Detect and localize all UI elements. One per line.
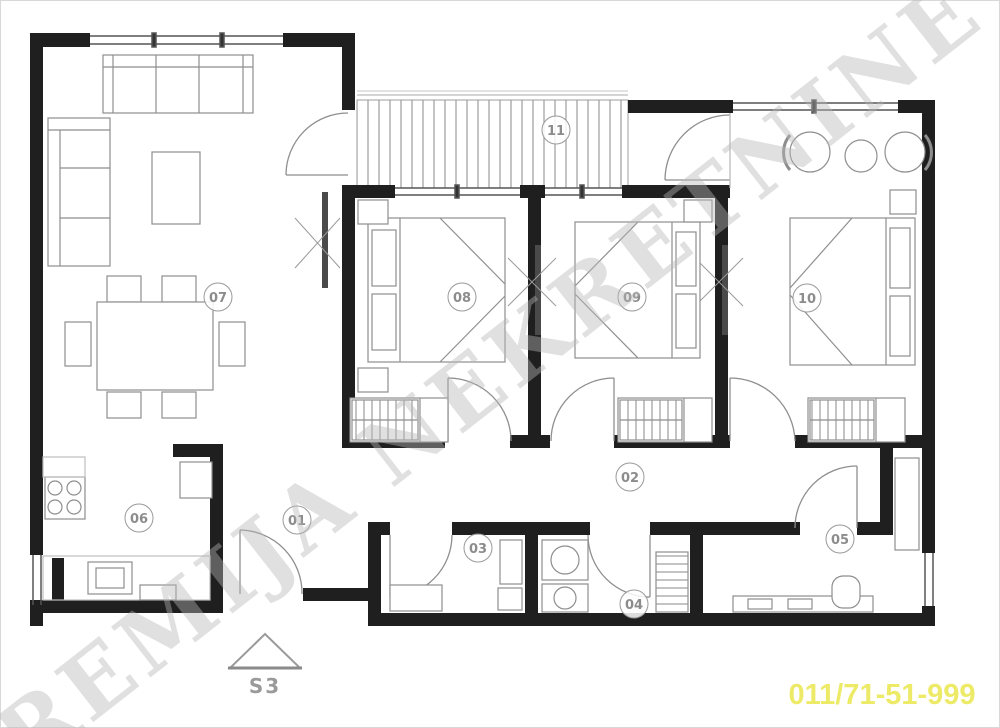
svg-text:07: 07 (209, 291, 227, 306)
shelf-icon (656, 552, 688, 612)
washing-machine-icon (542, 540, 588, 580)
svg-text:03: 03 (469, 542, 487, 557)
coffee-table-icon (152, 152, 200, 224)
wardrobe-icon (618, 398, 712, 442)
nightstand-icon (358, 200, 388, 224)
floor-plan-image: 01 02 03 04 05 06 07 08 09 10 11 S3 PREM… (0, 0, 1000, 728)
svg-text:06: 06 (130, 512, 148, 527)
sliding-door-leaf (322, 192, 328, 288)
nightstand-icon (358, 368, 388, 392)
room-label-04: 04 (620, 590, 648, 618)
room-label-05: 05 (826, 525, 854, 553)
room-label-06: 06 (125, 504, 153, 532)
svg-text:11: 11 (547, 124, 565, 139)
svg-text:10: 10 (798, 292, 816, 307)
room-label-02: 02 (616, 463, 644, 491)
svg-text:05: 05 (831, 533, 849, 548)
stove-icon (45, 477, 85, 519)
section-marker-label: S3 (249, 674, 281, 698)
room-label-10: 10 (793, 284, 821, 312)
kitchen-sink-icon (88, 562, 132, 594)
terrace-decking (357, 91, 628, 188)
sofa-icon (103, 55, 253, 113)
room-label-11: 11 (542, 116, 570, 144)
corner-sofa-icon (48, 118, 110, 266)
phone-number: 011/71-51-999 (788, 679, 975, 711)
svg-text:04: 04 (625, 598, 643, 613)
room-label-07: 07 (204, 283, 232, 311)
svg-text:02: 02 (621, 471, 639, 486)
floor-plan-svg: 01 02 03 04 05 06 07 08 09 10 11 S3 PREM… (0, 0, 1000, 728)
room-label-08: 08 (448, 283, 476, 311)
wardrobe-icon (808, 398, 905, 442)
toilet-icon (542, 584, 588, 612)
toilet-icon (498, 588, 522, 610)
sink-icon (500, 540, 522, 584)
svg-text:08: 08 (453, 291, 471, 306)
toilet-icon (832, 576, 860, 608)
fridge-icon (180, 462, 212, 498)
cabinet-icon (895, 458, 919, 550)
room-label-03: 03 (464, 534, 492, 562)
shower-icon (390, 585, 442, 611)
nightstand-icon (890, 190, 916, 214)
